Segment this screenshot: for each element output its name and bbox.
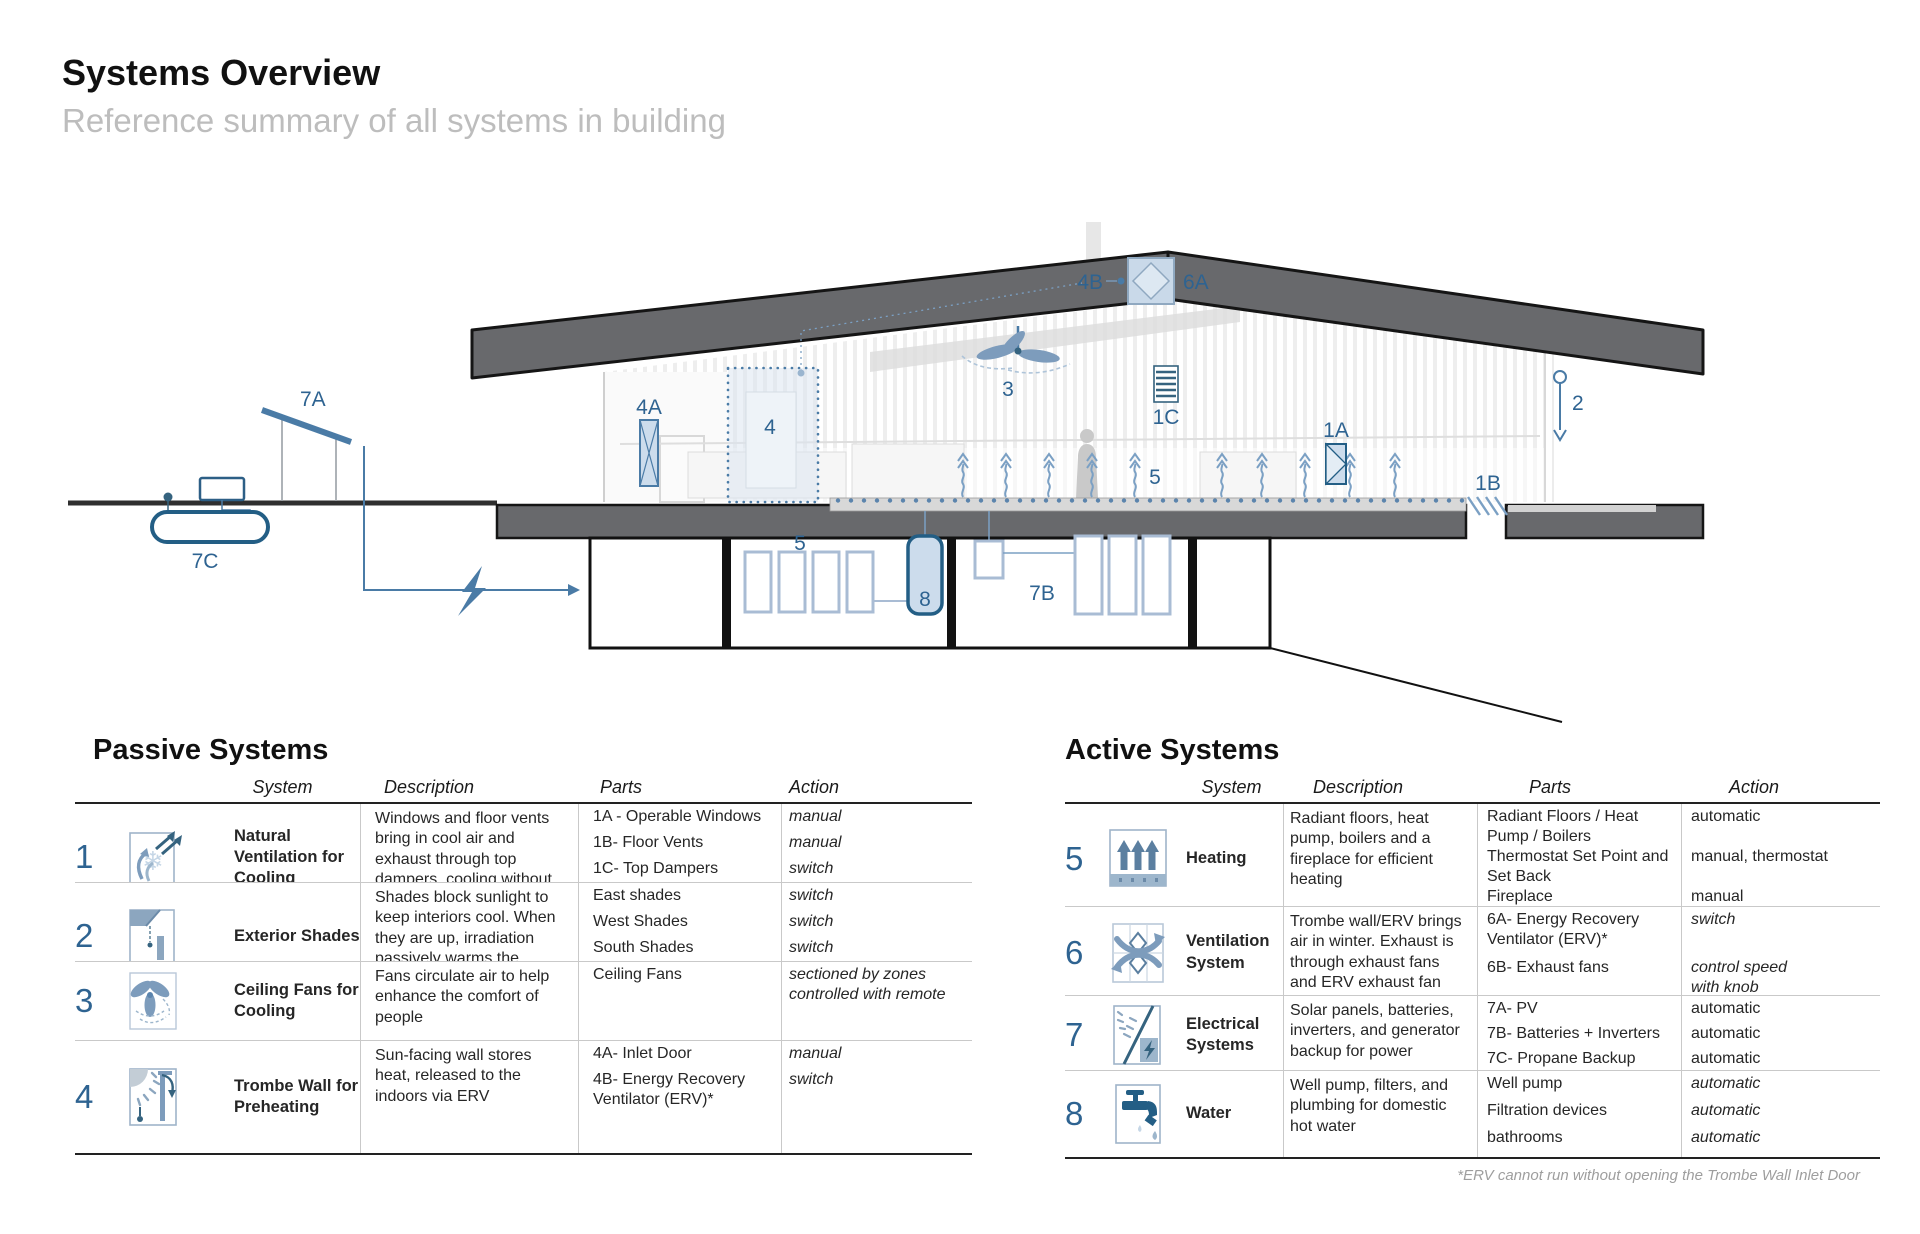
column-header-parts: Parts (578, 777, 781, 798)
exterior-shade-2: 2 (1554, 371, 1584, 440)
table-row: 1 ❄ Natural Ventilation for Cooling Wind… (75, 804, 972, 882)
exterior-shades-icon (105, 883, 205, 961)
label-5-basement: 5 (794, 532, 806, 555)
label-5-room: 5 (1149, 466, 1161, 489)
part-action: switch (781, 1070, 972, 1090)
system-name: Ceiling Fans for Cooling (205, 962, 360, 1040)
part-action: control speed with knob (1681, 958, 1880, 995)
system-name: Exterior Shades (205, 883, 360, 961)
active-table-header: System Description Parts Action (1065, 767, 1880, 804)
divider (1477, 804, 1478, 906)
part-name: Filtration devices (1477, 1101, 1681, 1121)
divider (578, 962, 579, 1040)
table-row: 5 Heating Radiant floors, heat pump, boi… (1065, 804, 1880, 906)
divider (1283, 804, 1284, 906)
table-row: 4 Trombe Wall (75, 1040, 972, 1153)
row-number: 6 (1065, 907, 1095, 995)
divider (578, 883, 579, 961)
ventilation-system-icon (1095, 907, 1180, 995)
part-action: manual (781, 1044, 972, 1064)
label-8: 8 (919, 588, 931, 611)
label-4b: 4B (1077, 271, 1103, 294)
divider (781, 883, 782, 961)
system-name: Ventilation System (1180, 907, 1283, 995)
divider (360, 1041, 361, 1153)
divider (578, 804, 579, 882)
table-row: 6 Ventilation System (1065, 906, 1880, 995)
system-description: Sun-facing wall stores heat, released to… (360, 1041, 578, 1153)
part-name: 4A- Inlet Door (578, 1044, 781, 1064)
part-action: automatic (1681, 1049, 1880, 1069)
part-action: automatic (1681, 999, 1880, 1019)
divider (1681, 1071, 1682, 1157)
column-header-parts: Parts (1477, 777, 1681, 798)
active-systems-title: Active Systems (1065, 733, 1880, 767)
divider (1681, 907, 1682, 995)
label-1b: 1B (1475, 472, 1501, 495)
row-number: 3 (75, 962, 105, 1040)
part-action: automatic (1681, 1024, 1880, 1044)
electrical-systems-icon (1095, 996, 1180, 1070)
radiant-floor-strip (830, 498, 1466, 511)
part-name: 4B- Energy Recovery Ventilator (ERV)* (578, 1070, 781, 1110)
part-name: 7B- Batteries + Inverters (1477, 1024, 1681, 1044)
water-icon (1095, 1071, 1180, 1157)
label-4a: 4A (636, 396, 662, 419)
part-action: switch (781, 912, 972, 932)
divider (1283, 996, 1284, 1070)
divider (1477, 996, 1478, 1070)
part-action: switch (1681, 910, 1880, 930)
part-action: sectioned by zones controlled with remot… (781, 965, 972, 1005)
part-action: automatic (1681, 1128, 1880, 1148)
divider (1681, 996, 1682, 1070)
label-1a: 1A (1323, 419, 1349, 442)
label-4: 4 (764, 416, 776, 439)
part-name: Fireplace (1477, 887, 1681, 906)
trombe-inlet-door-4a: 4A (636, 396, 662, 486)
row-number: 7 (1065, 996, 1095, 1070)
part-name: 1C- Top Dampers (578, 859, 781, 879)
system-description: Windows and floor vents bring in cool ai… (360, 804, 578, 882)
system-name: Heating (1180, 804, 1283, 906)
part-action: manual (1681, 887, 1880, 906)
row-number: 1 (75, 804, 105, 882)
row-number: 8 (1065, 1071, 1095, 1157)
part-action: automatic (1681, 807, 1880, 827)
operable-window-1a: 1A (1323, 419, 1349, 484)
solar-panel-7a: 7A (262, 388, 351, 501)
divider (360, 962, 361, 1040)
passive-systems-title: Passive Systems (75, 733, 972, 767)
system-description: Trombe wall/ERV brings air in winter. Ex… (1283, 907, 1477, 995)
row-number: 2 (75, 883, 105, 961)
label-7c: 7C (192, 550, 219, 573)
top-damper-1c: 1C (1153, 366, 1180, 429)
part-action: switch (781, 886, 972, 906)
divider (1681, 804, 1682, 906)
part-name: bathrooms (1477, 1128, 1681, 1148)
heating-icon (1095, 804, 1180, 906)
trombe-wall-zone-4: 4 (728, 368, 818, 502)
part-action: switch (781, 938, 972, 958)
table-row: 7 Electrical Systems Solar panels, batte… (1065, 995, 1880, 1070)
label-6a: 6A (1183, 271, 1209, 294)
divider (781, 804, 782, 882)
divider (360, 883, 361, 961)
label-2: 2 (1572, 392, 1584, 415)
divider (1477, 1071, 1478, 1157)
system-name: Electrical Systems (1180, 996, 1283, 1070)
inverter-box (164, 478, 251, 514)
part-action: manual (781, 807, 972, 827)
label-7b: 7B (1029, 582, 1055, 605)
label-3: 3 (1002, 378, 1014, 401)
system-description: Fans circulate air to help enhance the c… (360, 962, 578, 1040)
divider (1283, 1071, 1284, 1157)
label-1c: 1C (1153, 406, 1180, 429)
divider (1283, 907, 1284, 995)
passive-systems-table: Passive Systems System Description Parts… (75, 733, 972, 1155)
table-row: 3 Ceiling Fans for Cooling Fans circul (75, 961, 972, 1040)
column-header-description: Description (360, 777, 578, 798)
part-name: 1A - Operable Windows (578, 807, 781, 827)
part-name: Thermostat Set Point and Set Back (1477, 847, 1681, 887)
propane-tank-7c: 7C (152, 512, 268, 573)
part-action: switch (781, 859, 972, 879)
divider (360, 804, 361, 882)
ceiling-fans-icon (105, 962, 205, 1040)
building-section-diagram: 4B 6A 7A 7C 4A 4 (0, 0, 1920, 740)
column-header-system: System (205, 777, 360, 798)
part-name: Radiant Floors / Heat Pump / Boilers (1477, 807, 1681, 847)
passive-table-header: System Description Parts Action (75, 767, 972, 804)
system-description: Shades block sunlight to keep interiors … (360, 883, 578, 961)
row-number: 5 (1065, 804, 1095, 906)
part-name: 1B- Floor Vents (578, 833, 781, 853)
part-name: Ceiling Fans (578, 965, 781, 985)
system-description: Solar panels, batteries, inverters, and … (1283, 996, 1477, 1070)
part-name: Well pump (1477, 1074, 1681, 1094)
part-action: automatic (1681, 1074, 1880, 1094)
column-header-system: System (1180, 777, 1283, 798)
part-name: 6A- Energy Recovery Ventilator (ERV)* (1477, 910, 1681, 950)
system-name: Trombe Wall for Preheating (205, 1041, 360, 1153)
section-cut-line (1270, 648, 1562, 722)
row-number: 4 (75, 1041, 105, 1153)
divider (1477, 907, 1478, 995)
active-systems-table: Active Systems System Description Parts … (1065, 733, 1880, 1184)
system-name: Natural Ventilation for Cooling (205, 804, 360, 882)
part-name: 6B- Exhaust fans (1477, 958, 1681, 978)
natural-ventilation-icon: ❄ (105, 804, 205, 882)
part-name: 7C- Propane Backup (1477, 1049, 1681, 1069)
part-action: manual (781, 833, 972, 853)
system-description: Well pump, filters, and plumbing for dom… (1283, 1071, 1477, 1157)
table-row: 8 Water Well pump, filters, and plum (1065, 1070, 1880, 1157)
part-name: East shades (578, 886, 781, 906)
column-header-action: Action (1681, 777, 1880, 798)
table-row: 2 Exterior Shades Shades block sunlight … (75, 882, 972, 961)
trombe-wall-icon (105, 1041, 205, 1153)
part-action: automatic (1681, 1101, 1880, 1121)
system-description: Radiant floors, heat pump, boilers and a… (1283, 804, 1477, 906)
part-action: manual, thermostat (1681, 847, 1880, 867)
divider (781, 1041, 782, 1153)
part-name: 7A- PV (1477, 999, 1681, 1019)
label-7a: 7A (300, 388, 326, 411)
floor-slab (497, 498, 1703, 538)
column-header-action: Action (781, 777, 972, 798)
part-name: South Shades (578, 938, 781, 958)
divider (781, 962, 782, 1040)
divider (578, 1041, 579, 1153)
erv-footnote: *ERV cannot run without opening the Trom… (1065, 1167, 1880, 1184)
part-name: West Shades (578, 912, 781, 932)
system-name: Water (1180, 1071, 1283, 1157)
column-header-description: Description (1283, 777, 1477, 798)
